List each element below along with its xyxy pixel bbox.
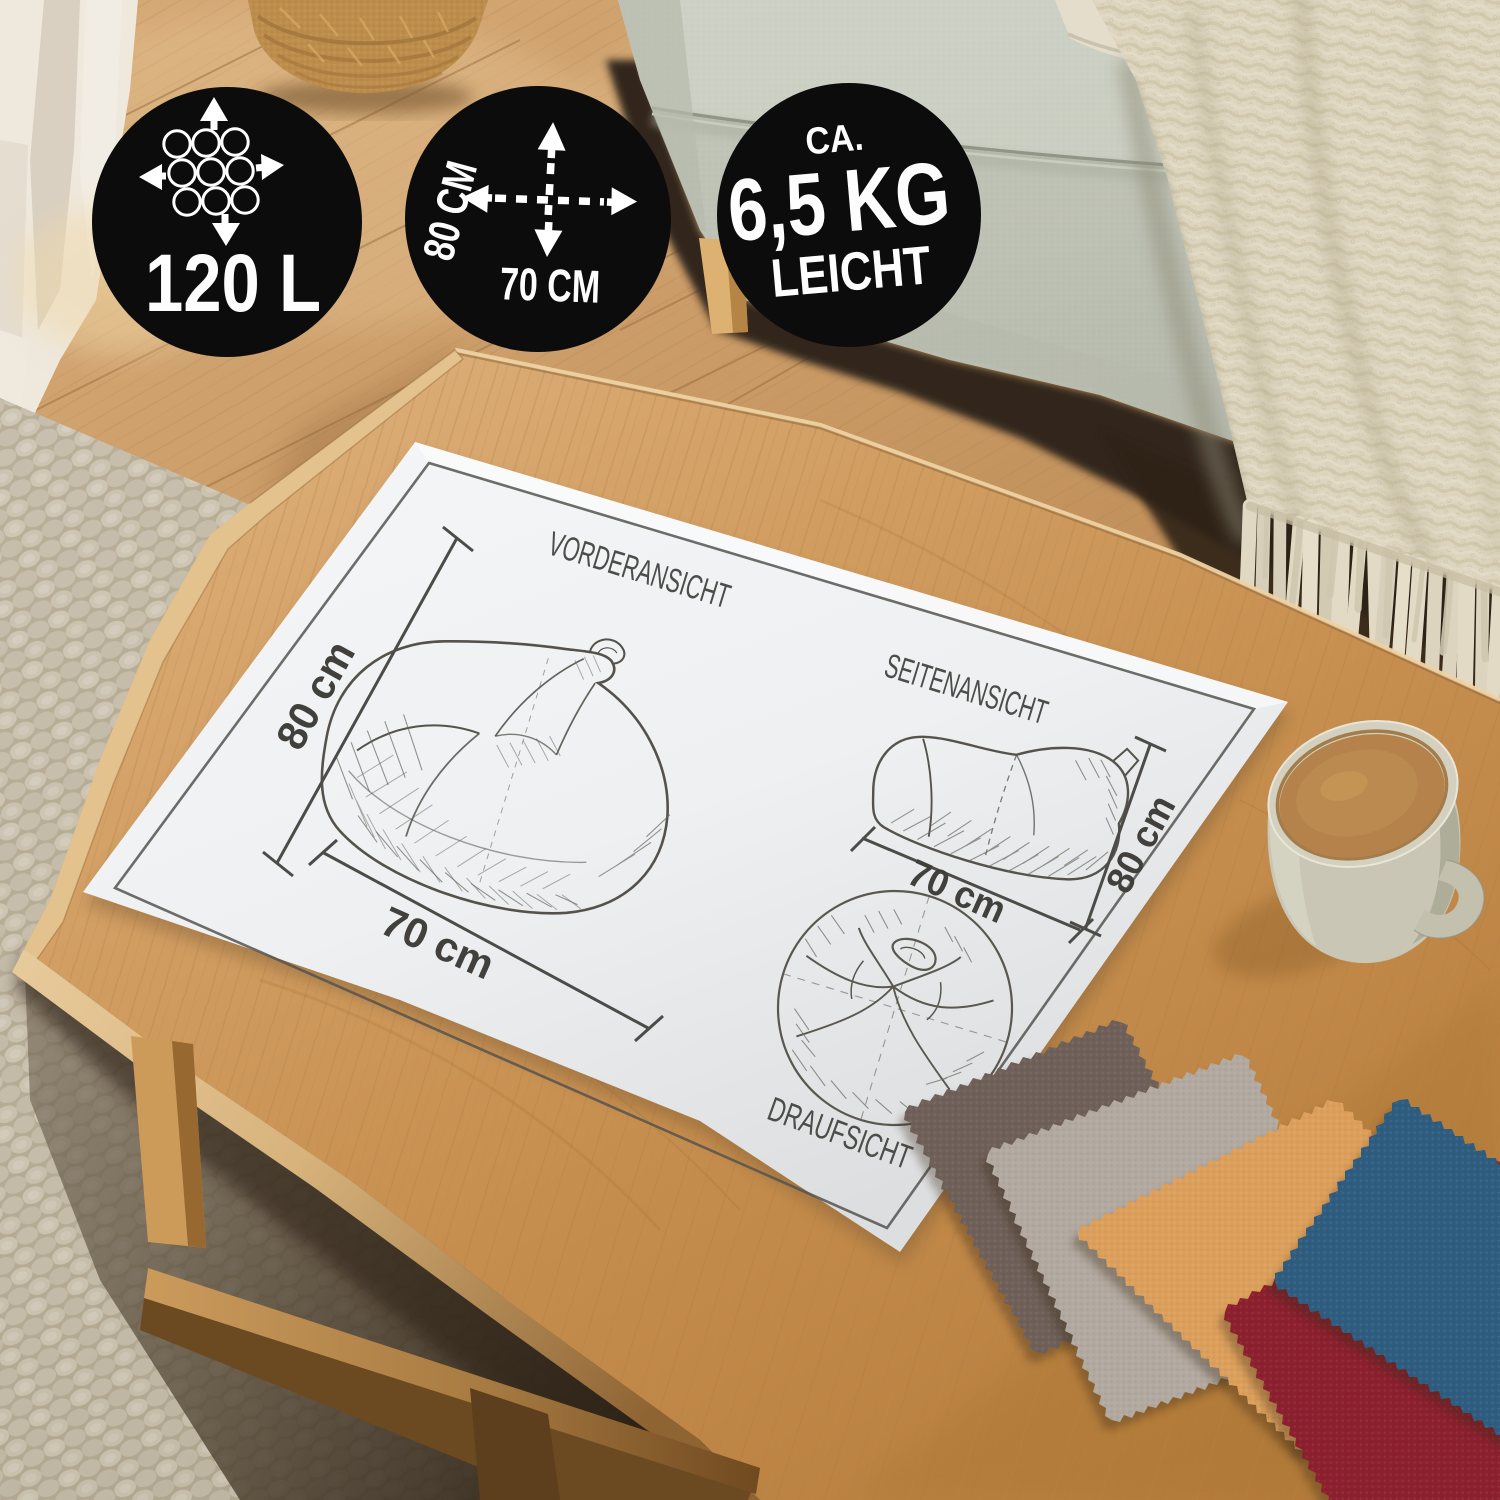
svg-text:70 CM: 70 CM: [499, 257, 601, 312]
svg-text:120 L: 120 L: [145, 238, 321, 329]
